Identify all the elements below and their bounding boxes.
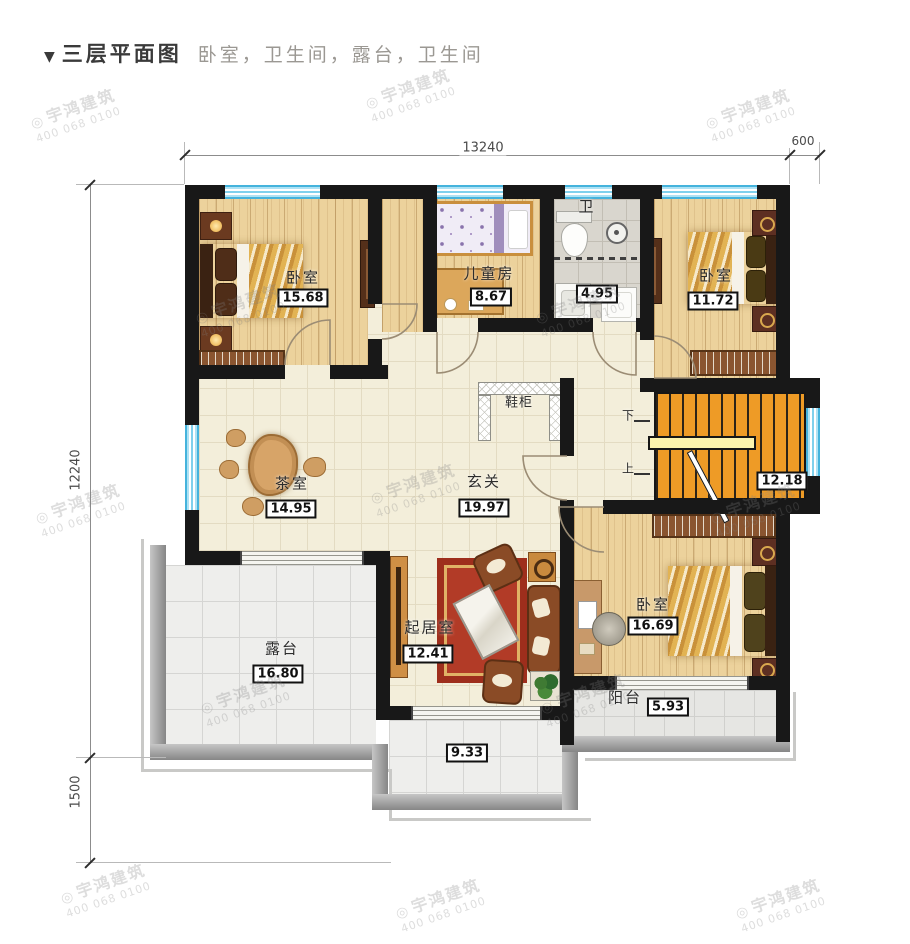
corridor-door	[382, 304, 417, 339]
shoe-cabinet-leg	[478, 395, 491, 441]
extension-line	[76, 862, 391, 863]
bathroom-partition	[554, 257, 640, 260]
dimension-label-left-lower: 1500	[69, 772, 84, 811]
room-label-living: 起居室	[404, 617, 455, 638]
watermark-logo-icon: ◎	[34, 508, 53, 528]
area-box-living: 12.41	[402, 645, 453, 664]
tea-stool	[242, 497, 264, 516]
wall	[636, 318, 654, 332]
window	[662, 185, 757, 199]
watermark-logo-icon: ◎	[394, 903, 413, 923]
page-title: 三层平面图	[62, 38, 182, 68]
sofa	[527, 585, 561, 674]
watermark: ◎宇鸿建筑400 068 0100	[361, 61, 457, 125]
tv	[396, 567, 401, 665]
parapet-outline	[141, 769, 391, 772]
sliding-window	[240, 551, 364, 565]
desk-lamp	[444, 298, 457, 311]
kids-room-door	[437, 332, 478, 373]
page-header: ▼ 三层平面图 卧室，卫生间，露台，卫生间	[44, 38, 484, 68]
wardrobe	[690, 350, 778, 376]
shower-dot	[614, 230, 619, 235]
watermark-logo-icon: ◎	[704, 113, 723, 133]
area-box-terrace: 16.80	[252, 665, 303, 684]
room-label-foyer: 玄关	[467, 471, 501, 492]
watermark-phone: 400 068 0100	[64, 879, 153, 920]
bed-blanket	[668, 566, 730, 656]
lamp	[210, 334, 222, 346]
knob	[760, 313, 775, 328]
parapet	[150, 545, 166, 760]
dimension-line-left	[90, 185, 91, 758]
watermark-logo-icon: ◎	[734, 903, 753, 923]
area-box-foyer: 19.97	[458, 499, 509, 518]
area-box-kids: 8.67	[470, 288, 512, 307]
watermark-phone: 400 068 0100	[739, 894, 828, 935]
floor-plan-page: ▼ 三层平面图 卧室，卫生间，露台，卫生间	[0, 0, 910, 944]
watermark-logo-icon: ◎	[59, 888, 78, 908]
potted-plant	[530, 671, 560, 701]
parapet	[562, 736, 790, 752]
room-label-bedroom-tr: 卧室	[699, 265, 733, 286]
parapet-outline	[389, 818, 591, 821]
bathroom-door	[593, 332, 636, 375]
watermark: ◎宇鸿建筑400 068 0100	[391, 871, 487, 935]
watermark: ◎宇鸿建筑400 068 0100	[731, 871, 827, 935]
side-table	[528, 552, 556, 582]
wall	[640, 378, 820, 392]
armchair	[482, 659, 525, 706]
wall	[538, 706, 574, 720]
extension-line	[184, 142, 185, 184]
sliding-window	[411, 706, 542, 720]
bed-sheet	[730, 566, 742, 656]
area-box-bedroom-br: 16.69	[627, 617, 678, 636]
watermark-brand: 宇鸿建筑	[719, 85, 793, 126]
area-box-bedroom-tr: 11.72	[687, 292, 738, 311]
bedroom-tl-door	[285, 320, 330, 365]
dimension-label-left: 12240	[69, 446, 84, 493]
area-box-balcony: 5.93	[647, 698, 689, 717]
kids-blanket	[436, 204, 494, 253]
room-label-bathroom: 卫	[578, 196, 595, 217]
watermark: ◎宇鸿建筑400 068 0100	[701, 81, 797, 145]
watermark: ◎宇鸿建筑400 068 0100	[56, 856, 152, 920]
watermark-phone: 400 068 0100	[709, 104, 798, 145]
wall	[776, 514, 790, 676]
wall	[423, 199, 437, 318]
bed-headboard	[200, 244, 213, 318]
watermark-phone: 400 068 0100	[399, 894, 488, 935]
knob	[760, 546, 775, 561]
watermark-brand: 宇鸿建筑	[44, 85, 118, 126]
watermark-brand: 宇鸿建筑	[749, 875, 823, 916]
stairs-up-line	[634, 473, 650, 475]
area-box-bedroom-tl: 15.68	[277, 289, 328, 308]
pillow	[744, 614, 766, 652]
wall	[603, 500, 820, 514]
room-label-bedroom-tl: 卧室	[286, 267, 320, 288]
window	[225, 185, 320, 199]
watermark-phone: 400 068 0100	[39, 499, 128, 540]
triangle-marker-icon: ▼	[44, 49, 55, 65]
extension-line	[789, 142, 790, 184]
room-label-balcony: 阳台	[608, 687, 642, 708]
stairs-up-label: 上	[622, 460, 634, 477]
wall	[478, 318, 593, 332]
wall	[745, 676, 790, 690]
window	[437, 185, 503, 199]
dimension-line-left-lower	[90, 758, 91, 863]
wall	[389, 706, 411, 720]
parapet-outline	[585, 758, 795, 761]
lamp	[210, 220, 222, 232]
watermark-logo-icon: ◎	[364, 93, 383, 113]
pillow	[508, 210, 528, 249]
wall	[368, 199, 382, 304]
parapet-outline	[141, 539, 144, 772]
wall	[423, 318, 437, 332]
shower-head	[606, 222, 628, 244]
watermark-phone: 400 068 0100	[369, 84, 458, 125]
room-label-kids: 儿童房	[463, 263, 514, 284]
tea-stool	[219, 460, 239, 479]
wall	[560, 378, 574, 456]
page-subtitle: 卧室，卫生间，露台，卫生间	[198, 40, 484, 67]
room-label-tea: 茶室	[275, 473, 309, 494]
parapet	[562, 744, 578, 810]
dimension-label-top-right: 600	[789, 134, 818, 148]
double-bed	[668, 566, 778, 656]
window	[185, 425, 199, 510]
armchair-cushion	[492, 673, 513, 687]
area-box-tea: 14.95	[265, 500, 316, 519]
room-label-terrace: 露台	[265, 638, 299, 659]
wall	[185, 365, 285, 379]
parapet	[372, 794, 578, 810]
desk-chair	[592, 612, 626, 646]
pillow	[215, 283, 237, 316]
pillow	[744, 572, 766, 610]
watermark-brand: 宇鸿建筑	[49, 480, 123, 521]
table-decor	[534, 559, 554, 579]
dimension-label-top: 13240	[459, 141, 506, 156]
watermark-logo-icon: ◎	[29, 113, 48, 133]
pillow	[746, 236, 766, 268]
kids-blanket-fold	[494, 204, 504, 253]
wall	[185, 551, 240, 565]
sofa-cushion	[531, 597, 551, 619]
parapet	[150, 744, 388, 760]
room-label-bedroom-br: 卧室	[636, 594, 670, 615]
nightstand	[200, 212, 232, 240]
pillow	[746, 270, 766, 302]
stair-hall-door	[523, 456, 567, 500]
wall	[776, 690, 790, 742]
bed-sheet	[237, 244, 249, 318]
desk-item	[579, 643, 595, 655]
stair-rail	[648, 436, 756, 450]
wall	[560, 676, 615, 690]
bedroom-tr-door	[654, 336, 696, 378]
wall	[376, 551, 390, 720]
pillow	[215, 248, 237, 281]
parapet-outline	[793, 692, 796, 761]
area-box-terrace-lower: 9.33	[446, 744, 488, 763]
stairs-down-label: 下	[622, 407, 634, 424]
wardrobe	[652, 514, 776, 538]
watermark-brand: 宇鸿建筑	[379, 65, 453, 106]
bedroom-br-door	[559, 507, 604, 552]
knob	[760, 217, 775, 232]
sofa-cushion	[531, 636, 550, 657]
area-box-bathroom: 4.95	[576, 285, 618, 304]
watermark-phone: 400 068 0100	[34, 104, 123, 145]
kids-bed	[433, 201, 533, 256]
watermark: ◎宇鸿建筑400 068 0100	[26, 81, 122, 145]
armchair-cushion	[484, 556, 508, 576]
wall	[330, 365, 388, 379]
watermark-brand: 宇鸿建筑	[409, 875, 483, 916]
wall	[776, 185, 790, 378]
dimension-line-top-right	[790, 155, 820, 156]
area-box-stairs: 12.18	[756, 472, 807, 491]
stairs-down-line	[634, 420, 650, 422]
label-shoe-cabinet: 鞋柜	[505, 392, 533, 411]
wall	[540, 199, 554, 318]
extension-line	[819, 142, 820, 184]
window	[806, 408, 820, 476]
